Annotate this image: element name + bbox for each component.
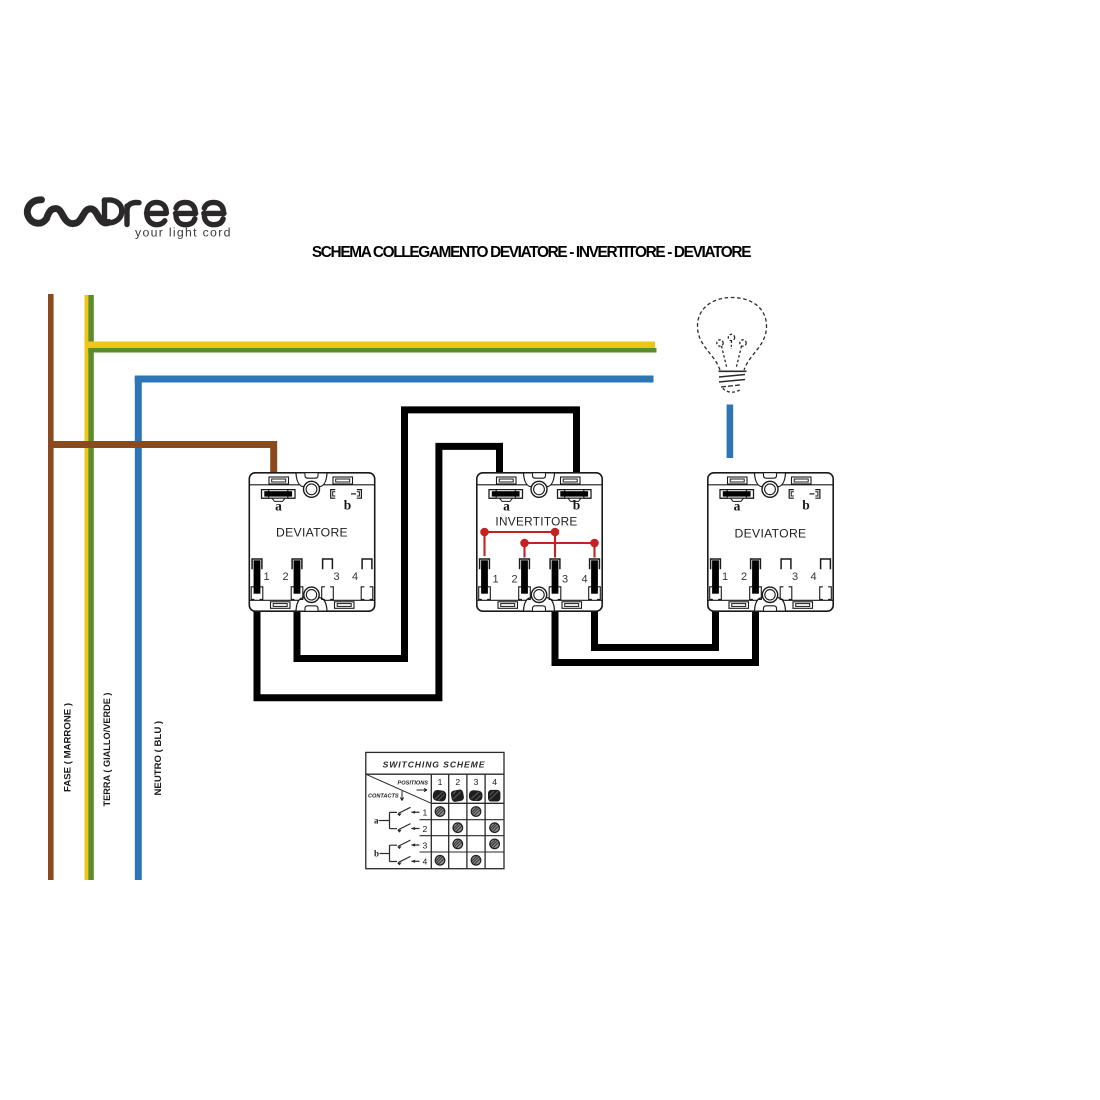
- svg-text:b: b: [374, 849, 379, 859]
- svg-text:CONTACTS: CONTACTS: [368, 794, 399, 800]
- svg-text:4: 4: [810, 571, 816, 583]
- svg-text:DEVIATORE: DEVIATORE: [276, 526, 348, 540]
- svg-text:INVERTITORE: INVERTITORE: [495, 515, 577, 529]
- svg-text:1: 1: [492, 573, 498, 585]
- svg-text:b: b: [344, 498, 352, 513]
- svg-text:1: 1: [722, 571, 728, 583]
- svg-text:NEUTRO ( BLU ): NEUTRO ( BLU ): [153, 721, 164, 796]
- svg-text:1: 1: [423, 808, 428, 818]
- svg-text:1: 1: [263, 571, 269, 583]
- svg-text:FASE ( MARRONE ): FASE ( MARRONE ): [63, 703, 74, 792]
- svg-text:b: b: [802, 498, 810, 513]
- svg-text:a: a: [275, 499, 282, 514]
- svg-text:a: a: [503, 499, 510, 514]
- svg-text:4: 4: [352, 571, 358, 583]
- svg-text:4: 4: [492, 777, 497, 787]
- svg-text:a: a: [374, 816, 379, 826]
- svg-text:POSITIONS: POSITIONS: [398, 781, 429, 787]
- svg-text:3: 3: [423, 840, 428, 850]
- svg-text:TERRA ( GIALLO/VERDE ): TERRA ( GIALLO/VERDE ): [102, 693, 112, 807]
- svg-text:3: 3: [792, 571, 798, 583]
- svg-text:2: 2: [455, 777, 460, 787]
- svg-text:3: 3: [562, 573, 568, 585]
- svg-text:a: a: [734, 499, 741, 514]
- svg-text:2: 2: [741, 571, 747, 583]
- svg-text:2: 2: [282, 571, 288, 583]
- svg-text:SWITCHING SCHEME: SWITCHING SCHEME: [383, 759, 486, 769]
- svg-text:4: 4: [581, 573, 587, 585]
- svg-text:SCHEMA COLLEGAMENTO DEVIATORE: SCHEMA COLLEGAMENTO DEVIATORE - INVERTIT…: [312, 244, 751, 261]
- svg-text:DEVIATORE: DEVIATORE: [734, 527, 806, 541]
- svg-text:2: 2: [423, 824, 428, 834]
- svg-text:1: 1: [438, 777, 443, 787]
- svg-text:your light cord: your light cord: [135, 226, 232, 240]
- svg-text:3: 3: [333, 571, 339, 583]
- svg-text:4: 4: [423, 857, 428, 867]
- svg-text:2: 2: [511, 573, 517, 585]
- svg-text:3: 3: [474, 777, 479, 787]
- svg-text:b: b: [573, 498, 581, 513]
